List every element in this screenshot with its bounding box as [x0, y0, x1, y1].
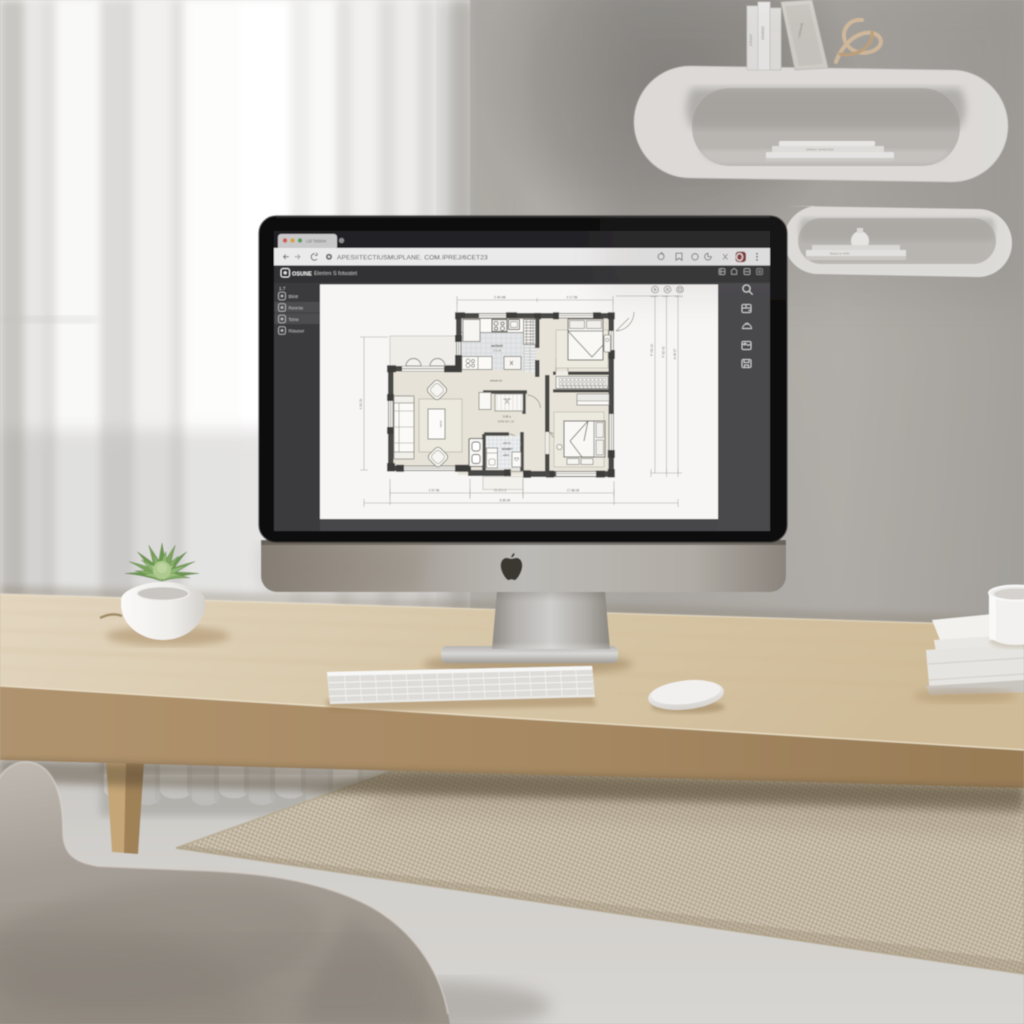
svg-text:Tetne: Tetne [289, 317, 300, 322]
svg-text:wctbett: wctbett [490, 344, 504, 348]
svg-text:0 45 NB: 0 45 NB [494, 296, 506, 300]
svg-text:P 7M 19: P 7M 19 [650, 344, 654, 356]
svg-text:APESIITECTIUSMUPLANE. COM.IPRE: APESIITECTIUSMUPLANE. COM.IPREJ/6CET23 [337, 254, 488, 261]
svg-text:ubstat tet: ubstat tet [490, 379, 503, 383]
svg-text:Btintr: Btintr [289, 294, 299, 299]
svg-text:Renrcte: Renrcte [289, 305, 304, 310]
svg-text:OSUNE: OSUNE [292, 271, 312, 277]
svg-text:72 071 0: 72 071 0 [494, 488, 507, 492]
svg-text:BGBBT: BGBBT [502, 447, 513, 451]
svg-text:A 46 97: A 46 97 [673, 348, 677, 359]
svg-text:Eterten: Eterten [314, 271, 331, 277]
svg-text:5.85 a: 5.85 a [503, 415, 511, 419]
svg-text:wBst: wBst [503, 453, 509, 457]
svg-text:9 9 18: 9 9 18 [493, 348, 501, 352]
svg-text:8 85 49: 8 85 49 [500, 498, 511, 502]
svg-text:Ritsuner: Ritsuner [289, 328, 305, 333]
svg-text:P 10 42: P 10 42 [662, 346, 666, 357]
svg-text:a00 ttx: a00 ttx [503, 441, 511, 445]
svg-text:0 17 58: 0 17 58 [567, 296, 578, 300]
svg-text:Ltd Tablets: Ltd Tablets [306, 239, 326, 244]
svg-text:BT80 097 1 B: BT80 097 1 B [498, 420, 514, 424]
svg-text:S fotwatet: S fotwatet [333, 271, 357, 277]
svg-text:1.7: 1.7 [279, 286, 286, 291]
svg-text:17 88 08: 17 88 08 [567, 488, 580, 492]
svg-text:4 04 29: 4 04 29 [359, 398, 363, 409]
svg-text:btotte: btotte [439, 421, 443, 428]
svg-text:2 97 98: 2 97 98 [429, 488, 440, 492]
